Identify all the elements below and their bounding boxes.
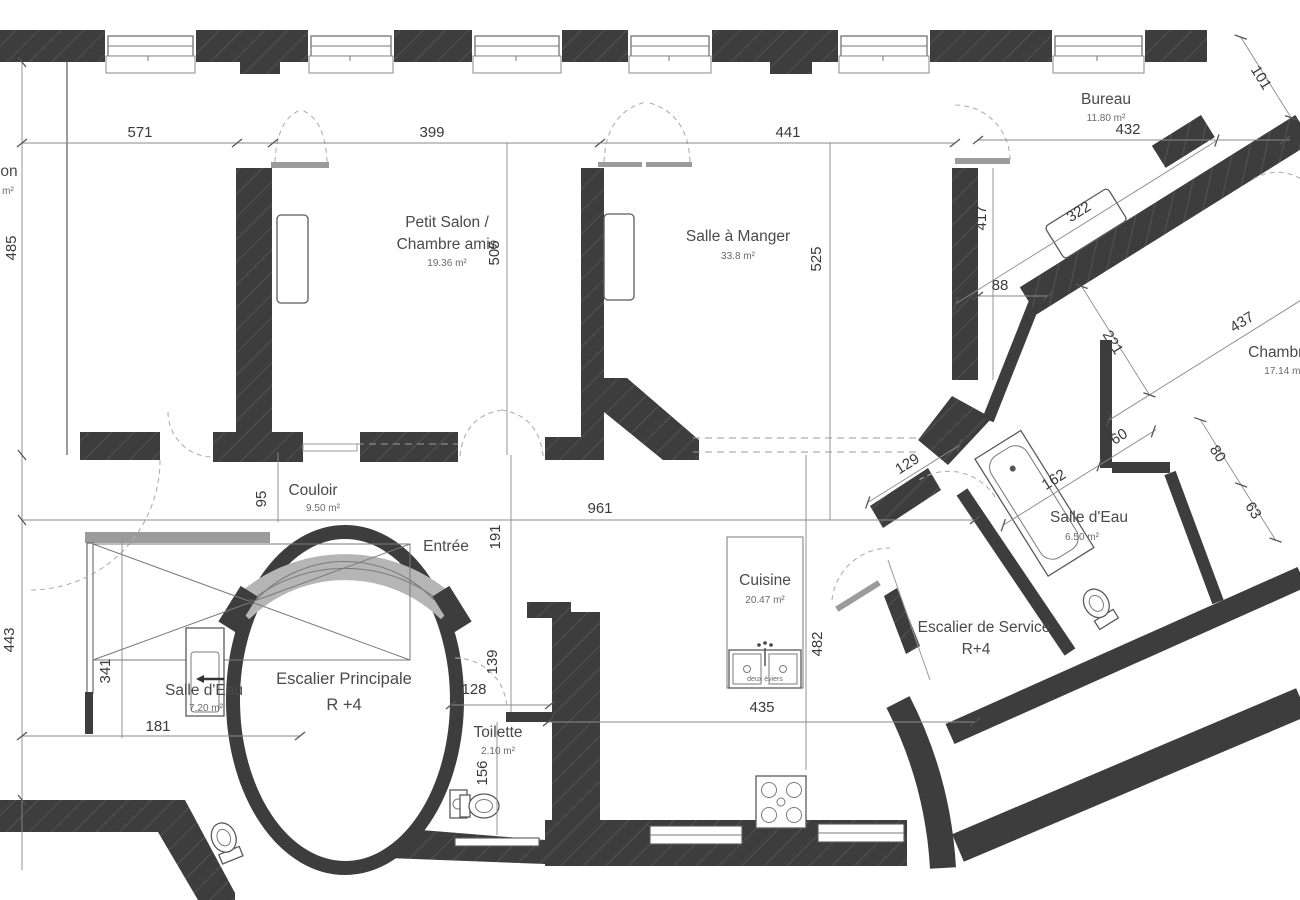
window-icon xyxy=(309,36,393,73)
dim-505: 505 xyxy=(486,240,503,265)
room-label-petit-salon-2: Chambre amis xyxy=(397,236,498,253)
room-label-bureau: Bureau xyxy=(1081,91,1131,108)
dim-399: 399 xyxy=(419,124,444,141)
dim-95: 95 xyxy=(253,491,270,508)
room-label-couloir: Couloir xyxy=(288,482,337,499)
toilet-icon xyxy=(460,794,499,818)
room-label-salle-eau-droite: Salle d'Eau xyxy=(1050,509,1128,526)
room-label-chambre: Chambre xyxy=(1248,344,1300,361)
room-area-salle-eau-droite: 6.50 m² xyxy=(1065,532,1100,543)
room-area-salle-eau-gauche: 7.20 m² xyxy=(189,703,224,714)
stove-icon xyxy=(756,776,806,828)
dim-129: 129 xyxy=(892,450,922,478)
wall-sam-diagonal xyxy=(604,378,699,460)
room-area-couloir: 9.50 m² xyxy=(306,503,341,514)
dim-139: 139 xyxy=(484,649,501,674)
wall-wing-left xyxy=(988,304,1034,420)
room-label-salon-partial: on xyxy=(0,163,17,180)
floor-plan-page: 322 437 221 60 162 129 80 63 101 xyxy=(0,0,1300,900)
wall-wing-bottom-outer xyxy=(958,702,1300,848)
dim-341: 341 xyxy=(97,658,114,683)
dim-128: 128 xyxy=(461,681,486,698)
dim-525: 525 xyxy=(808,246,825,271)
dim-441: 441 xyxy=(775,124,800,141)
toilet-icon xyxy=(1078,584,1119,630)
wall-salle-a-manger-right xyxy=(952,168,978,380)
dim-101: 101 xyxy=(1247,63,1275,93)
room-label-petit-salon: Petit Salon / xyxy=(405,214,489,231)
dim-482: 482 xyxy=(809,631,826,656)
room-area-salle-a-manger: 33.8 m² xyxy=(721,251,756,262)
window-icon xyxy=(629,36,711,73)
wall-salle-a-manger-left xyxy=(581,168,604,440)
room-label-salle-eau-gauche: Salle d'Eau xyxy=(165,682,243,699)
dim-437: 437 xyxy=(1227,308,1257,336)
dim-63: 63 xyxy=(1241,499,1264,522)
dim-80: 80 xyxy=(1206,442,1229,465)
floor-plan-canvas: 322 437 221 60 162 129 80 63 101 xyxy=(0,0,1300,900)
dim-181: 181 xyxy=(145,718,170,735)
dim-191: 191 xyxy=(487,524,504,549)
dim-485: 485 xyxy=(3,235,20,260)
doors xyxy=(30,102,1010,710)
room-label-toilette: Toilette xyxy=(473,724,522,741)
room-area-toilette: 2.10 m² xyxy=(481,746,516,757)
room-label-entree: Entrée xyxy=(423,538,469,555)
room-label-cuisine: Cuisine xyxy=(739,572,791,589)
kitchen-island xyxy=(727,537,803,688)
interior-walls xyxy=(0,62,1300,900)
room-area-salon-partial: m² xyxy=(2,186,14,197)
room-area-chambre: 17.14 m² xyxy=(1264,366,1300,377)
sofa-icon xyxy=(604,214,634,300)
room-label-escalier-service: Escalier de Service xyxy=(918,619,1051,636)
bathtub-icon xyxy=(975,430,1094,576)
dim-961: 961 xyxy=(587,500,612,517)
room-area-petit-salon: 19.36 m² xyxy=(427,258,467,269)
window-icon xyxy=(1053,36,1144,73)
room-level-escalier-principale: R +4 xyxy=(326,696,361,714)
room-level-escalier-service: R+4 xyxy=(962,641,991,658)
window-icon xyxy=(473,36,561,73)
dim-417: 417 xyxy=(973,205,990,230)
dim-156: 156 xyxy=(474,760,491,785)
dim-432: 432 xyxy=(1115,121,1140,138)
dim-571: 571 xyxy=(127,124,152,141)
window-icon xyxy=(818,824,904,842)
dim-88: 88 xyxy=(992,277,1009,294)
dim-443: 443 xyxy=(1,627,18,652)
dim-435: 435 xyxy=(749,699,774,716)
window-icon xyxy=(106,36,195,73)
wall-bottom-left xyxy=(0,800,235,900)
window-icon xyxy=(650,826,742,844)
room-label-escalier-principale: Escalier Principale xyxy=(276,670,412,688)
kitchen-sink-label: deux éviers xyxy=(747,676,783,683)
wall-petit-salon-left xyxy=(236,168,272,415)
room-label-salle-a-manger: Salle à Manger xyxy=(686,228,790,245)
window-icon xyxy=(839,36,929,73)
room-area-cuisine: 20.47 m² xyxy=(745,595,785,606)
sofa-icon xyxy=(277,215,308,303)
